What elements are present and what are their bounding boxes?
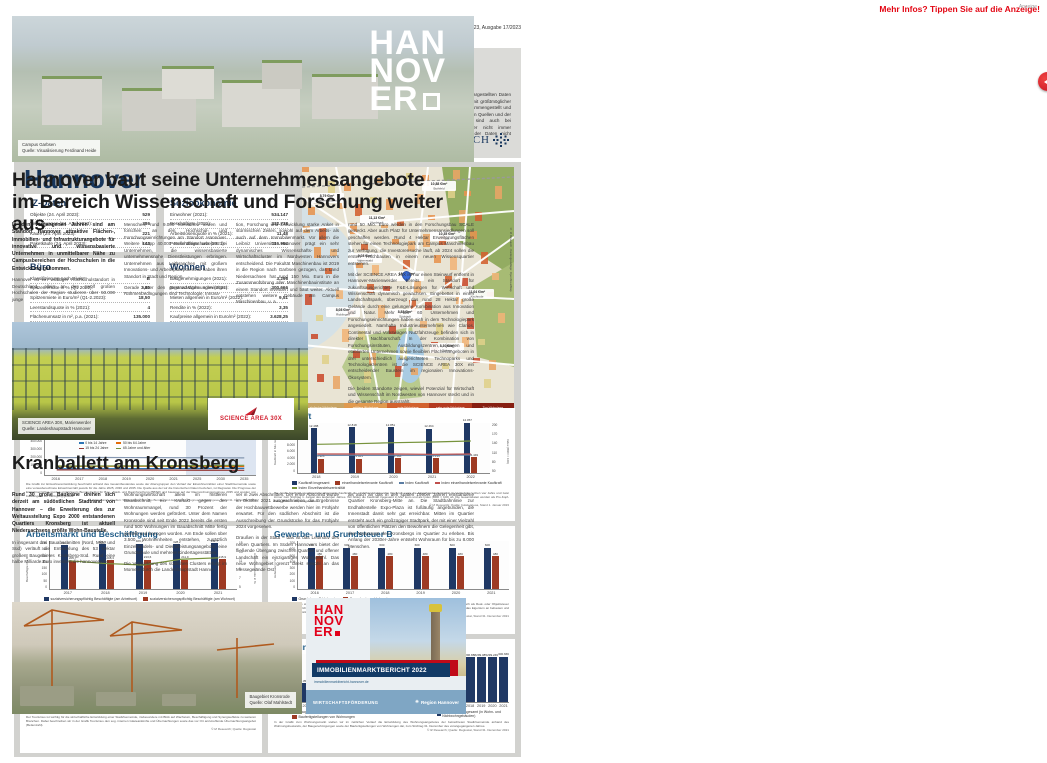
bar: 600: [484, 548, 491, 589]
building-block: [42, 76, 102, 125]
region-star-icon: ✳: [415, 699, 419, 705]
back-arrow-button[interactable]: [1038, 72, 1047, 91]
science-area-photo: SCIENCE AREA 30X, MarienwerderQuelle: La…: [12, 322, 308, 440]
legend-item: Baufertigstellungen von Wohnungen: [292, 715, 355, 719]
ad-url[interactable]: immobilienmarktbericht-hannover.de: [314, 680, 369, 684]
iz-star-icon: [493, 133, 509, 147]
ad-title-band: IMMOBILIENMARKTBERICHT 2022: [316, 660, 458, 676]
immobilienmarktbericht-ad[interactable]: HANNOV ER IMMOBILIENMARKTBERICHT 2022 im…: [306, 598, 466, 714]
bar: 300.666: [499, 657, 508, 702]
building-block: [262, 60, 302, 89]
hero-caption: Campus GarbsenQuelle: Visualisierung Fer…: [18, 140, 100, 156]
tap-ad-note: Mehr Infos? Tippen Sie auf die Anzeige!: [879, 4, 1040, 14]
building-block: [162, 66, 214, 99]
ad-hannover-logo: HANNOV ER: [314, 604, 344, 637]
article1-col3: tion, Forschung und Entwicklung starke A…: [236, 222, 339, 322]
article1-col1: In den vergangenen Jahren sind am Stando…: [12, 222, 115, 322]
hannover-logo-square-icon: [423, 93, 440, 110]
article2-col3: ver in zwei Abschnitten. Der erste Absch…: [236, 492, 339, 600]
red-square-icon: [335, 631, 340, 636]
legend-item: Kaufkraft insgesamt: [292, 481, 329, 485]
article2-col2: Wohnungswirtschaft allein im mittleren B…: [124, 492, 227, 600]
anzeige-label: Anzeige: [1019, 4, 1037, 10]
article2-col1: Rund 30 große Baukräne drehen sich derze…: [12, 492, 115, 600]
construction-site-photo: Baugebiet KronsrodeQuelle: Olaf Mahlsted…: [12, 602, 302, 714]
bar: 480: [492, 556, 499, 589]
legend-item: Index Einzelhandelszentralität: [292, 486, 345, 490]
digital-ad-page: Anzeige HANNOV ER Campus GarbsenQuelle: …: [0, 0, 494, 740]
science-area-caption: SCIENCE AREA 30X, MarienwerderQuelle: La…: [18, 418, 95, 434]
article2-headline: Kranballett am Kronsberg: [12, 452, 342, 474]
map-credit: © IZ Research · Kartengrundlage: OpenStr…: [509, 227, 513, 291]
article2-col4: als auch an das in den späten 1990er Jah…: [348, 492, 474, 600]
building-block: [312, 74, 378, 119]
article1-col4: rund 50 Mio. Euro werden in den Forschun…: [348, 222, 474, 494]
plane-icon: [245, 407, 257, 415]
tower-icon: [431, 604, 440, 664]
science-area-logo: SCIENCE AREA 30X: [208, 398, 294, 430]
bar: 296.888: [466, 657, 475, 702]
bar: 299.249: [488, 657, 497, 702]
ad-footer: WIRTSCHAFTSFÖRDERUNG ✳Region Hannover: [306, 690, 466, 714]
kronsrode-caption: Baugebiet KronsrodeQuelle: Olaf Mahlsted…: [245, 692, 296, 708]
article1-col2: Menschen, rund 9.000 Menschen lehren und…: [124, 222, 227, 322]
bar: 299.085: [477, 657, 486, 702]
hannover-wordmark: HANNOV ER: [369, 30, 446, 114]
hero-ad-image[interactable]: HANNOV ER Campus GarbsenQuelle: Visualis…: [12, 16, 474, 162]
